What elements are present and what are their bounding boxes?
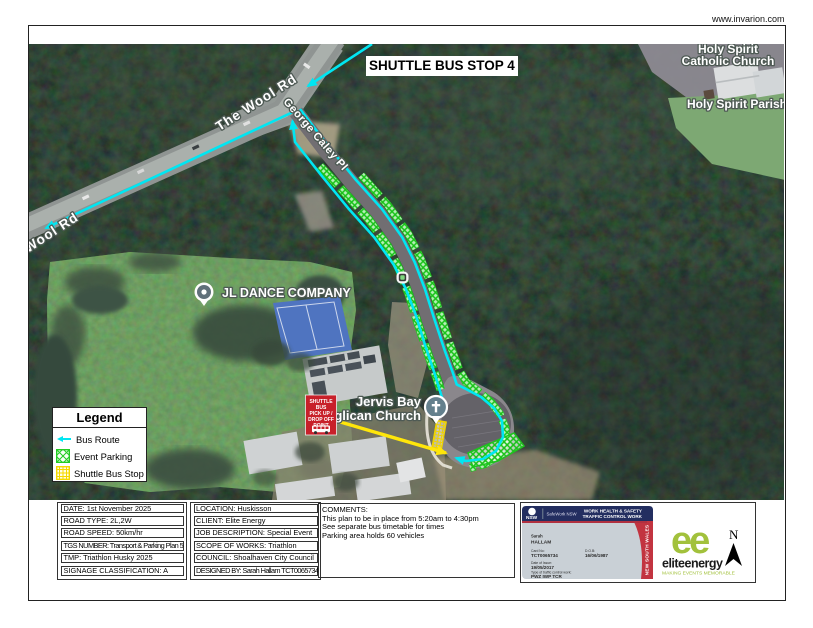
svg-text:19/05/2017: 19/05/2017 — [531, 565, 554, 570]
svg-text:HALLAM: HALLAM — [531, 540, 551, 546]
svg-text:Holy Spirit Parish: Holy Spirit Parish — [687, 97, 784, 111]
svg-text:NSW: NSW — [526, 515, 538, 521]
svg-text:SafeWork NSW: SafeWork NSW — [547, 512, 578, 517]
svg-text:16/06/1987: 16/06/1987 — [585, 553, 608, 558]
svg-text:TRAFFIC CONTROL WORK: TRAFFIC CONTROL WORK — [583, 514, 643, 519]
svg-text:JL DANCE COMPANY: JL DANCE COMPANY — [222, 286, 351, 300]
svg-text:Catholic Church: Catholic Church — [682, 54, 775, 68]
svg-text:eliteenergy: eliteenergy — [662, 557, 723, 571]
svg-text:N: N — [729, 527, 739, 542]
svg-text:MAKING EVENTS MEMORABLE: MAKING EVENTS MEMORABLE — [662, 571, 736, 577]
svg-text:Jervis Bay: Jervis Bay — [356, 394, 422, 409]
svg-text:WORK HEALTH & SAFETY: WORK HEALTH & SAFETY — [584, 509, 642, 514]
svg-text:Sarah: Sarah — [531, 534, 543, 539]
svg-text:NEW SOUTH WALES: NEW SOUTH WALES — [645, 524, 651, 575]
svg-text:PWZ IWP TCR: PWZ IWP TCR — [531, 574, 562, 579]
svg-text:TCT0065734: TCT0065734 — [531, 553, 558, 558]
